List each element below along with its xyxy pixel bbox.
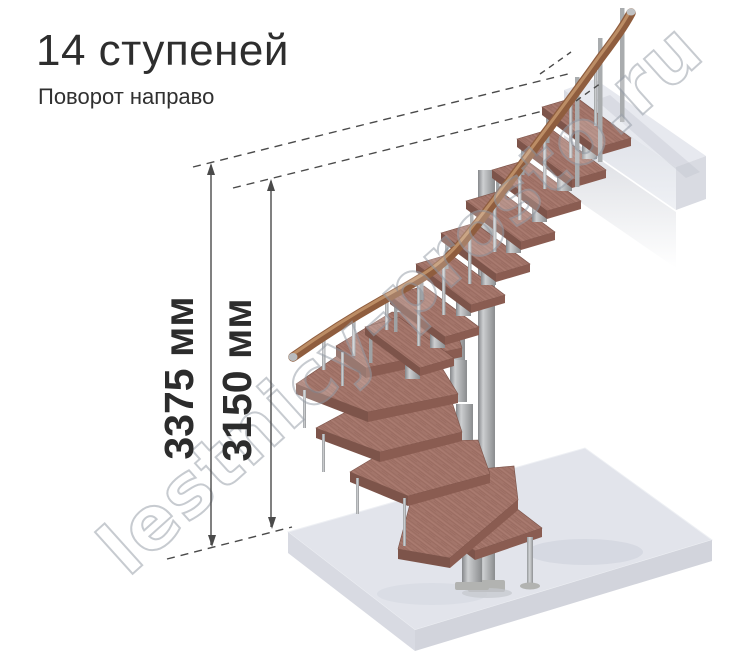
floor-shadow <box>527 539 643 565</box>
staircase-illustration: lestnicy-prosto.ru 3375 мм 3150 мм <box>0 0 743 655</box>
arrow-down-icon <box>268 517 276 529</box>
dimension-label-flight-height: 3150 мм <box>214 298 260 461</box>
handrail-top-cap <box>627 9 636 16</box>
arrow-down-icon <box>208 535 216 547</box>
extension-tick-1 <box>540 52 571 74</box>
staircase-diagram-page: 14 ступеней Поворот направо <box>0 0 743 655</box>
dimension-label-total-height: 3375 мм <box>156 296 202 459</box>
arrow-up-icon <box>267 179 275 191</box>
arrow-up-icon <box>207 163 215 175</box>
